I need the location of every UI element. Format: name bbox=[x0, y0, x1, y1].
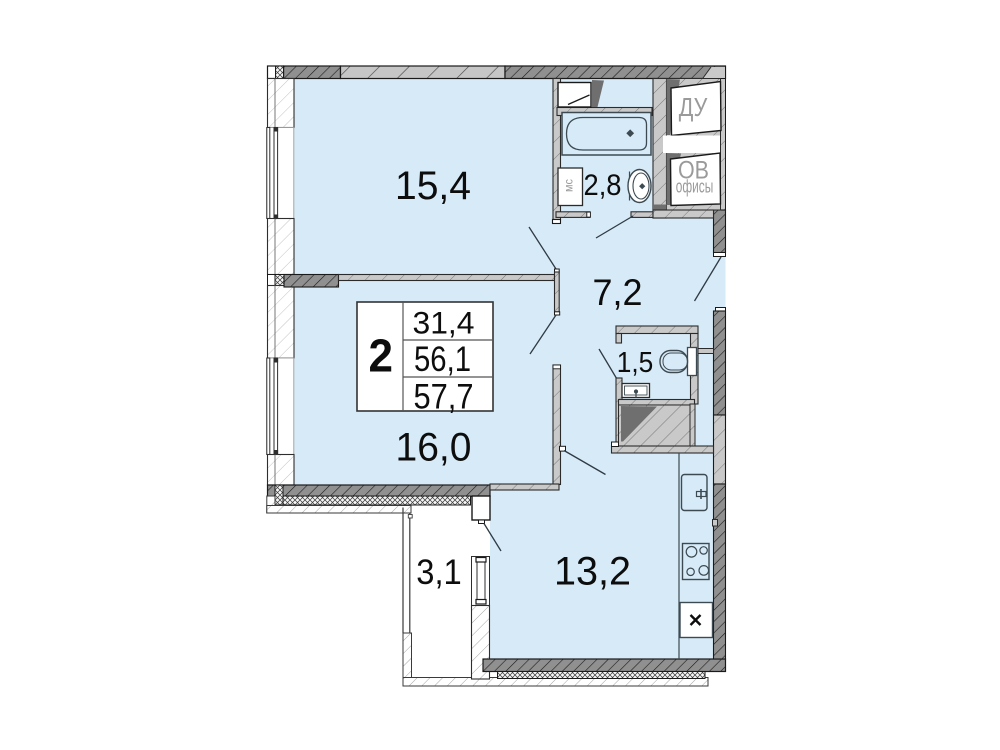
svg-text:1,5: 1,5 bbox=[617, 347, 654, 379]
svg-text:3,1: 3,1 bbox=[416, 553, 462, 592]
svg-text:15,4: 15,4 bbox=[395, 164, 471, 208]
svg-text:2,8: 2,8 bbox=[584, 169, 622, 202]
svg-text:13,2: 13,2 bbox=[554, 550, 631, 594]
svg-text:16,0: 16,0 bbox=[396, 426, 472, 470]
svg-text:ДУ: ДУ bbox=[679, 92, 708, 122]
svg-text:7,2: 7,2 bbox=[593, 272, 643, 313]
svg-text:2: 2 bbox=[369, 330, 394, 382]
svg-text:57,7: 57,7 bbox=[414, 377, 474, 417]
svg-text:31,4: 31,4 bbox=[413, 305, 475, 341]
svg-text:офисы: офисы bbox=[676, 177, 714, 197]
svg-text:56,1: 56,1 bbox=[414, 340, 471, 379]
svg-text:мс: мс bbox=[564, 179, 576, 192]
